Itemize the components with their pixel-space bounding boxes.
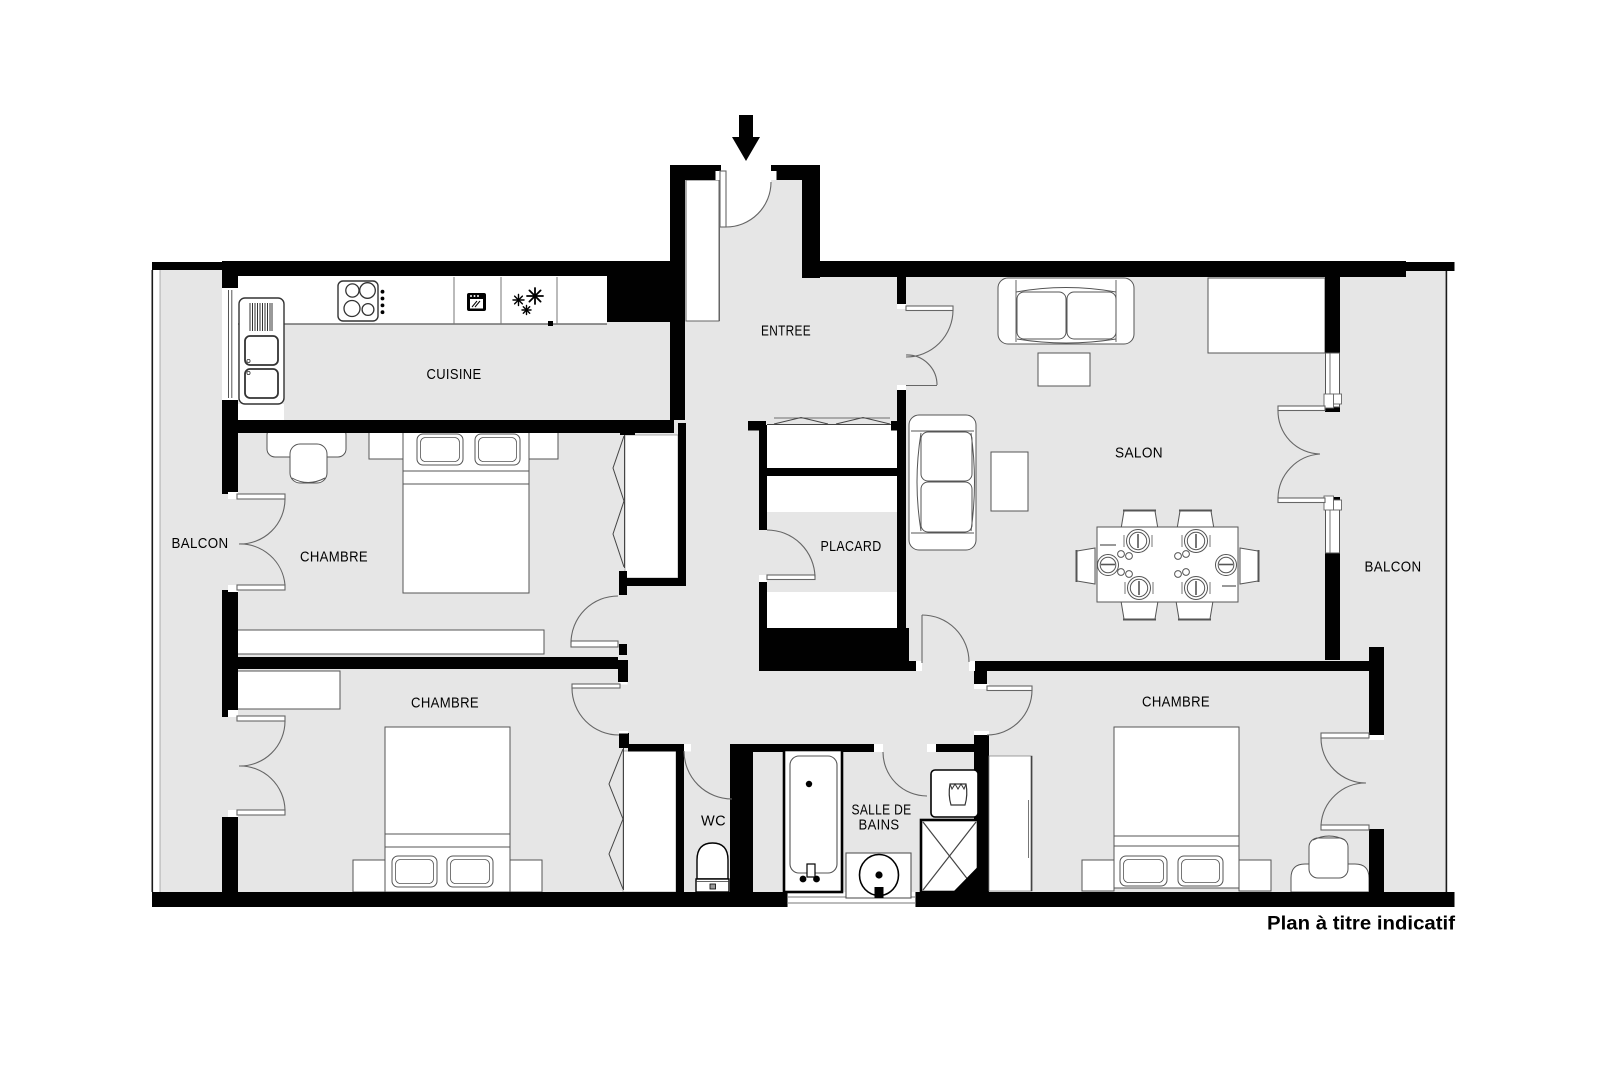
svg-text:CHAMBRE: CHAMBRE bbox=[1142, 694, 1210, 711]
svg-text:Plan à titre indicatif: Plan à titre indicatif bbox=[1267, 913, 1456, 935]
svg-text:BAINS: BAINS bbox=[859, 817, 900, 834]
svg-text:PLACARD: PLACARD bbox=[821, 538, 882, 555]
svg-text:BALCON: BALCON bbox=[172, 535, 229, 552]
svg-text:BALCON: BALCON bbox=[1365, 559, 1422, 576]
svg-text:SALON: SALON bbox=[1115, 445, 1163, 462]
svg-text:CUISINE: CUISINE bbox=[427, 366, 482, 383]
svg-text:ENTREE: ENTREE bbox=[761, 323, 811, 340]
svg-text:WC: WC bbox=[701, 813, 726, 830]
svg-text:CHAMBRE: CHAMBRE bbox=[300, 549, 368, 566]
svg-text:CHAMBRE: CHAMBRE bbox=[411, 695, 479, 712]
